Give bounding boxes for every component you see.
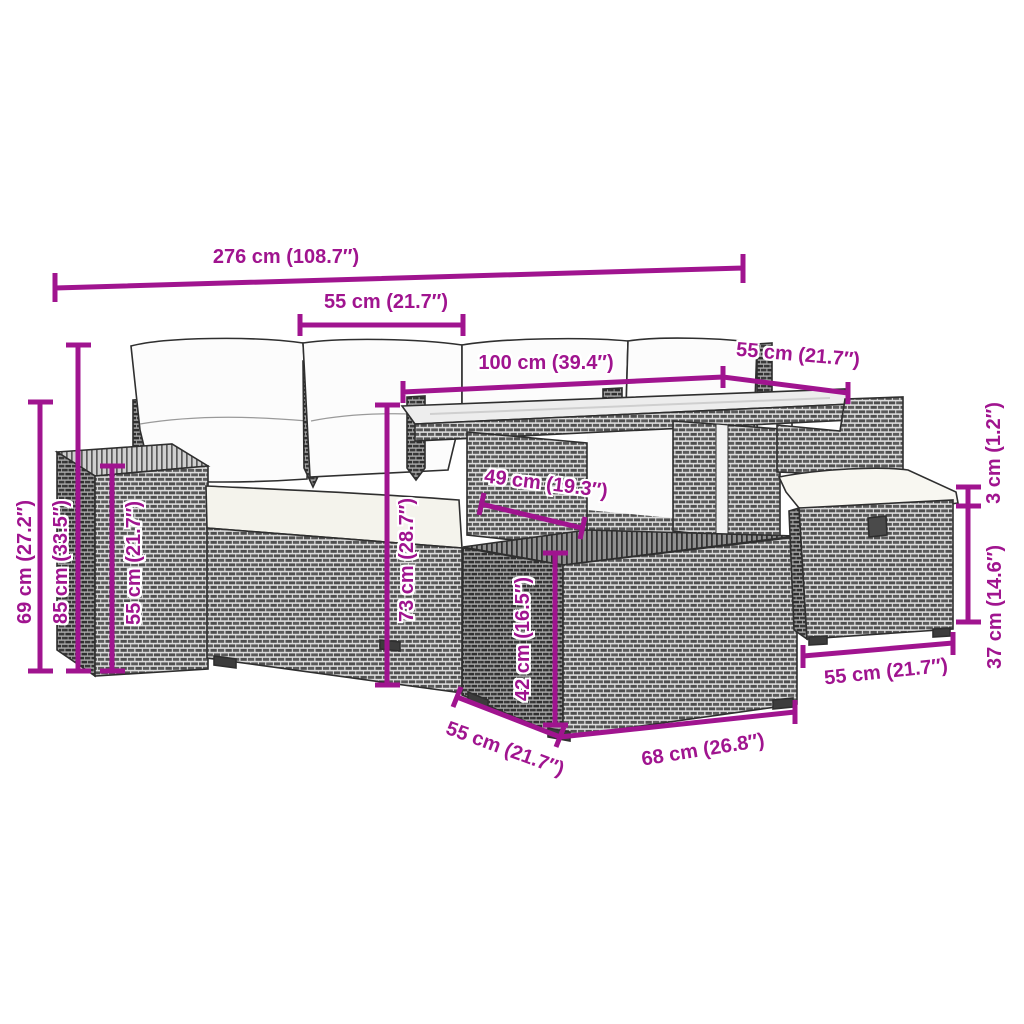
- dim-label-total-height: 85 cm (33.5″): [51, 500, 71, 624]
- dim-line-left-seat-width: [300, 314, 463, 336]
- stool-handle: [868, 516, 887, 537]
- stool-foot: [809, 636, 827, 645]
- sofa-foot: [214, 656, 236, 668]
- sofa-base: [207, 528, 462, 693]
- stool-foot: [933, 628, 950, 637]
- ottoman-foot: [773, 698, 793, 709]
- dim-label-seat-height: 55 cm (21.7″): [124, 501, 144, 625]
- dim-line-cushion-and-stool-height: [956, 487, 981, 622]
- ottoman-right-face: [563, 537, 797, 737]
- dim-label-table-height: 73 cm (28.7″): [397, 498, 417, 622]
- dimension-diagram: 276 cm (108.7″) 55 cm (21.7″) 100 cm (39…: [0, 0, 1024, 1024]
- dim-label-table-width: 100 cm (39.4″): [478, 353, 613, 373]
- dim-label-stool-height: 37 cm (14.6″): [985, 545, 1005, 669]
- dim-label-total-width: 276 cm (108.7″): [213, 247, 359, 267]
- stool: [777, 397, 958, 645]
- furniture-line-art: [0, 0, 1024, 1024]
- dim-label-left-seat-width: 55 cm (21.7″): [324, 292, 448, 312]
- sofa-foot: [380, 640, 400, 651]
- dim-label-arm-height: 69 cm (27.2″): [15, 500, 35, 624]
- pedestal-glass-strip: [716, 424, 728, 539]
- dim-label-cushion-thickness: 3 cm (1.2″): [984, 402, 1004, 504]
- dim-label-ottoman-height: 42 cm (16.5″): [513, 577, 533, 701]
